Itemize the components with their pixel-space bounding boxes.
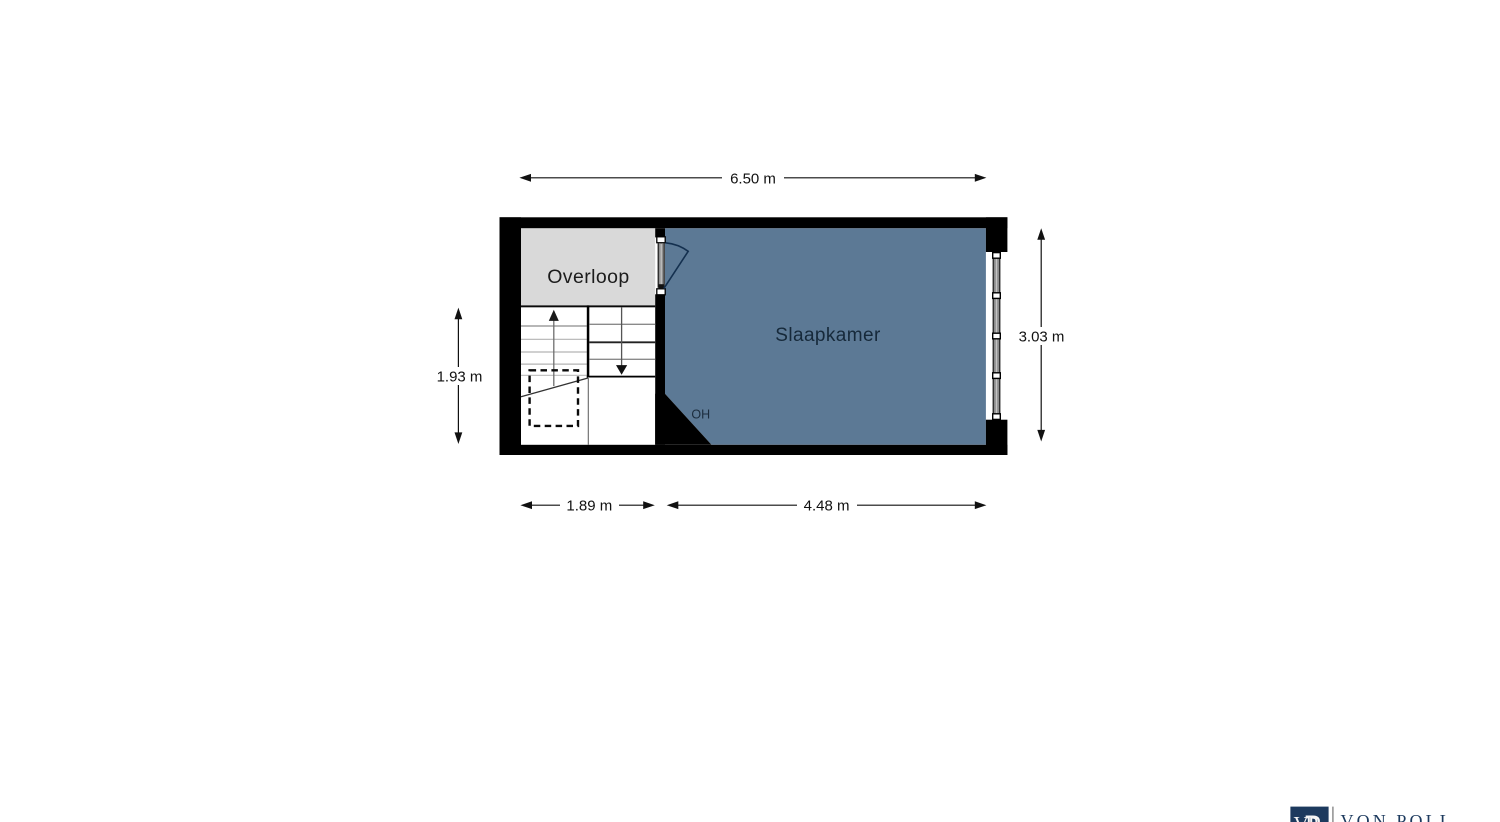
svg-text:3.03 m: 3.03 m: [1019, 329, 1065, 346]
svg-text:4.48 m: 4.48 m: [804, 498, 850, 515]
svg-text:1.89 m: 1.89 m: [566, 498, 612, 515]
svg-text:1.93 m: 1.93 m: [437, 369, 483, 386]
svg-text:P: P: [1306, 812, 1320, 822]
svg-text:Slaapkamer: Slaapkamer: [775, 325, 881, 346]
svg-text:6.50 m: 6.50 m: [730, 170, 776, 187]
svg-text:VON POLL: VON POLL: [1341, 811, 1454, 822]
svg-text:OH: OH: [691, 407, 710, 421]
svg-text:Overloop: Overloop: [547, 266, 629, 288]
